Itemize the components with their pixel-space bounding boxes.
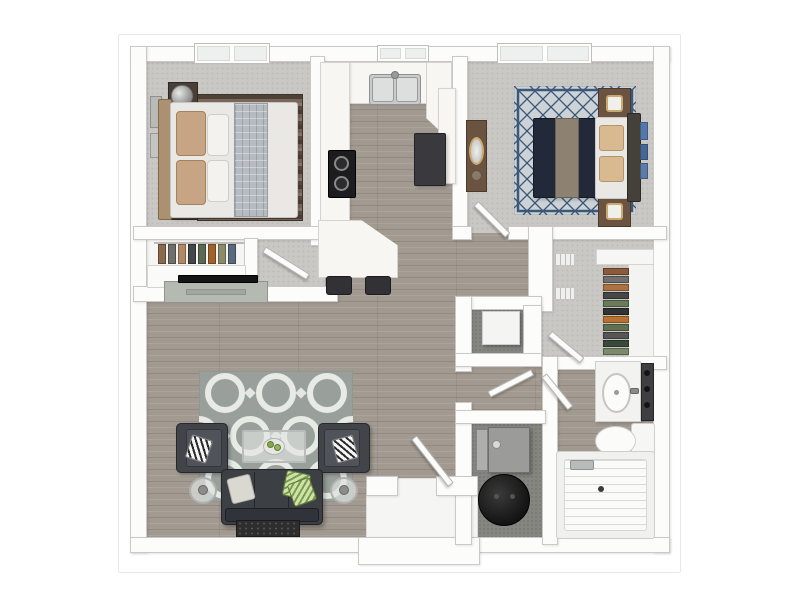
mirror-light	[644, 386, 650, 392]
washer-panel	[476, 429, 488, 471]
side-table-decor	[339, 485, 349, 495]
bedroom2-pillow-bottom	[599, 156, 624, 182]
clothes-item	[208, 244, 216, 264]
washer	[488, 427, 530, 473]
wall-closet1-top	[133, 226, 325, 240]
stove-burner	[334, 176, 349, 191]
bedroom2-bed-runner	[555, 118, 579, 198]
bedroom1-pillow-white-bottom	[207, 160, 229, 202]
wall-hallcloset-bottom	[455, 353, 542, 367]
door-mat	[236, 520, 300, 537]
kitchen-sink-basin-left	[372, 77, 394, 102]
bathroom-sink-drain	[614, 390, 619, 395]
bedroom2-wall-decor-blue	[640, 163, 648, 179]
clothes-item	[603, 348, 629, 355]
floor-plan-canvas	[0, 0, 800, 600]
bedroom1-pillow-tan-top	[176, 111, 206, 156]
bedroom2-lamp-top	[606, 95, 623, 112]
bedroom2-wall-decor-blue	[640, 122, 648, 140]
water-heater-cap	[494, 494, 499, 499]
bar-stool	[326, 276, 352, 295]
clothes-item	[603, 292, 629, 299]
clothes-item	[198, 244, 206, 264]
stove-burner	[334, 156, 349, 171]
bedroom2-dresser-mirror	[469, 137, 484, 165]
walkin-wardrobe-panel	[628, 264, 654, 357]
bedroom1-window	[194, 43, 270, 64]
hallcloset-storage-box	[482, 311, 520, 345]
clothes-item	[228, 244, 236, 264]
mirror-light	[644, 370, 650, 376]
tv-screen	[178, 275, 258, 283]
bedroom2-dresser-knob	[471, 170, 482, 181]
walkin-shelf-top	[596, 249, 654, 265]
console-detail	[186, 289, 246, 295]
clothes-item	[603, 268, 629, 275]
wall-utility-top	[455, 410, 546, 424]
walkin-wire-shelf	[554, 253, 575, 266]
entry-jamb-left	[366, 476, 398, 496]
bedroom2-lamp-bottom	[606, 203, 623, 220]
clothes-item	[178, 244, 186, 264]
water-heater	[478, 474, 530, 526]
bedroom2-window	[497, 43, 592, 64]
bedroom1-blanket	[234, 103, 268, 217]
refrigerator	[414, 133, 446, 186]
clothes-item	[188, 244, 196, 264]
clothes-item	[603, 340, 629, 347]
green-apples	[274, 444, 281, 451]
kitchen-faucet	[391, 71, 399, 79]
bathroom-faucet	[630, 388, 639, 394]
bedroom2-headboard	[627, 113, 641, 202]
green-apples	[267, 441, 274, 448]
side-table-decor	[198, 485, 208, 495]
kitchen-sink-basin-right	[396, 77, 418, 102]
clothes-item	[603, 276, 629, 283]
washer-knob	[492, 440, 501, 449]
clothes-item	[603, 300, 629, 307]
clothes-item	[603, 332, 629, 339]
clothes-item	[168, 244, 176, 264]
bedroom1-pillow-tan-bottom	[176, 160, 206, 205]
outer-wall-right	[653, 46, 670, 553]
bar-stool	[365, 276, 391, 295]
bathtub-drain	[598, 486, 604, 492]
clothes-item	[218, 244, 226, 264]
bedroom2-wall-decor-blue	[640, 144, 648, 160]
walkin-wire-shelf	[554, 287, 575, 300]
clothes-item	[158, 244, 166, 264]
clothes-item	[603, 316, 629, 323]
kitchen-window	[377, 45, 429, 62]
bedroom1-pillow-white-top	[207, 114, 229, 156]
clothes-item	[603, 308, 629, 315]
water-heater-cap	[510, 494, 515, 499]
clothes-item	[603, 284, 629, 291]
bathtub-faucet	[570, 460, 594, 470]
bedroom2-pillow-top	[599, 125, 624, 151]
wall-bedroom2-bottom-left	[452, 226, 472, 240]
sofa-cushion-divider	[254, 472, 255, 509]
mirror-light	[644, 402, 650, 408]
clothes-item	[603, 324, 629, 331]
